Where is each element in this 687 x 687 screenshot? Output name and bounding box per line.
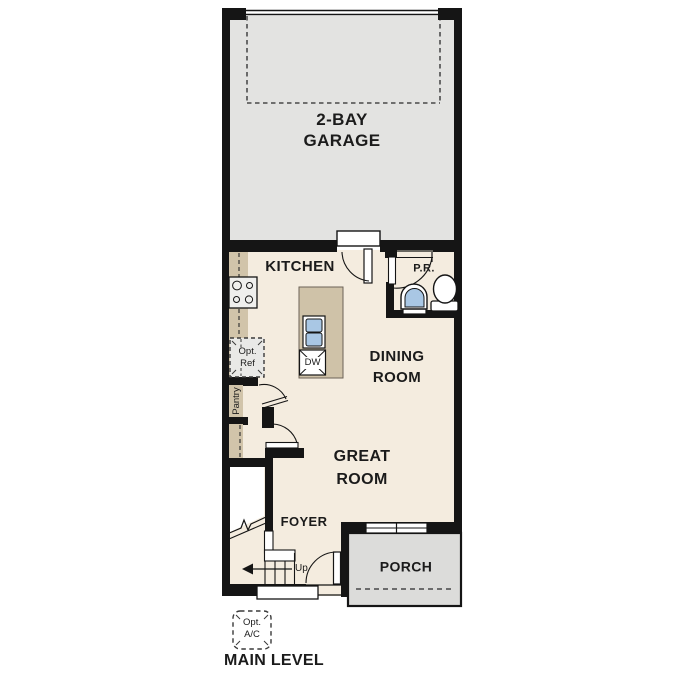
great-room-label: GREAT ROOM <box>334 445 391 491</box>
island-sink-icon <box>303 316 325 348</box>
garage-label: 2-BAY GARAGE <box>303 109 380 151</box>
kitchen-label: KITCHEN <box>265 257 334 277</box>
floor-plan: 2-BAY GARAGE KITCHEN P.R. DINING ROOM GR… <box>0 0 687 687</box>
dining-room-label: DINING ROOM <box>370 346 425 388</box>
great-room-windows <box>366 523 427 533</box>
entry-stoop <box>257 586 318 599</box>
stairs-up-label: Up <box>295 563 308 576</box>
closet-shelf <box>229 424 243 458</box>
porch-label: PORCH <box>380 558 433 577</box>
foyer-label: FOYER <box>281 513 328 531</box>
dishwasher-label: DW <box>305 357 321 369</box>
powder-room-label: P.R. <box>413 262 435 277</box>
pantry-label: Pantry <box>231 387 243 414</box>
cooktop-icon <box>229 277 257 308</box>
pedestal-sink-icon <box>401 284 427 314</box>
page-title: MAIN LEVEL <box>224 650 324 672</box>
optional-refrigerator-label: Opt. Ref <box>239 346 257 370</box>
optional-ac-label: Opt. A/C <box>243 617 261 641</box>
floor-plan-canvas <box>0 0 687 687</box>
